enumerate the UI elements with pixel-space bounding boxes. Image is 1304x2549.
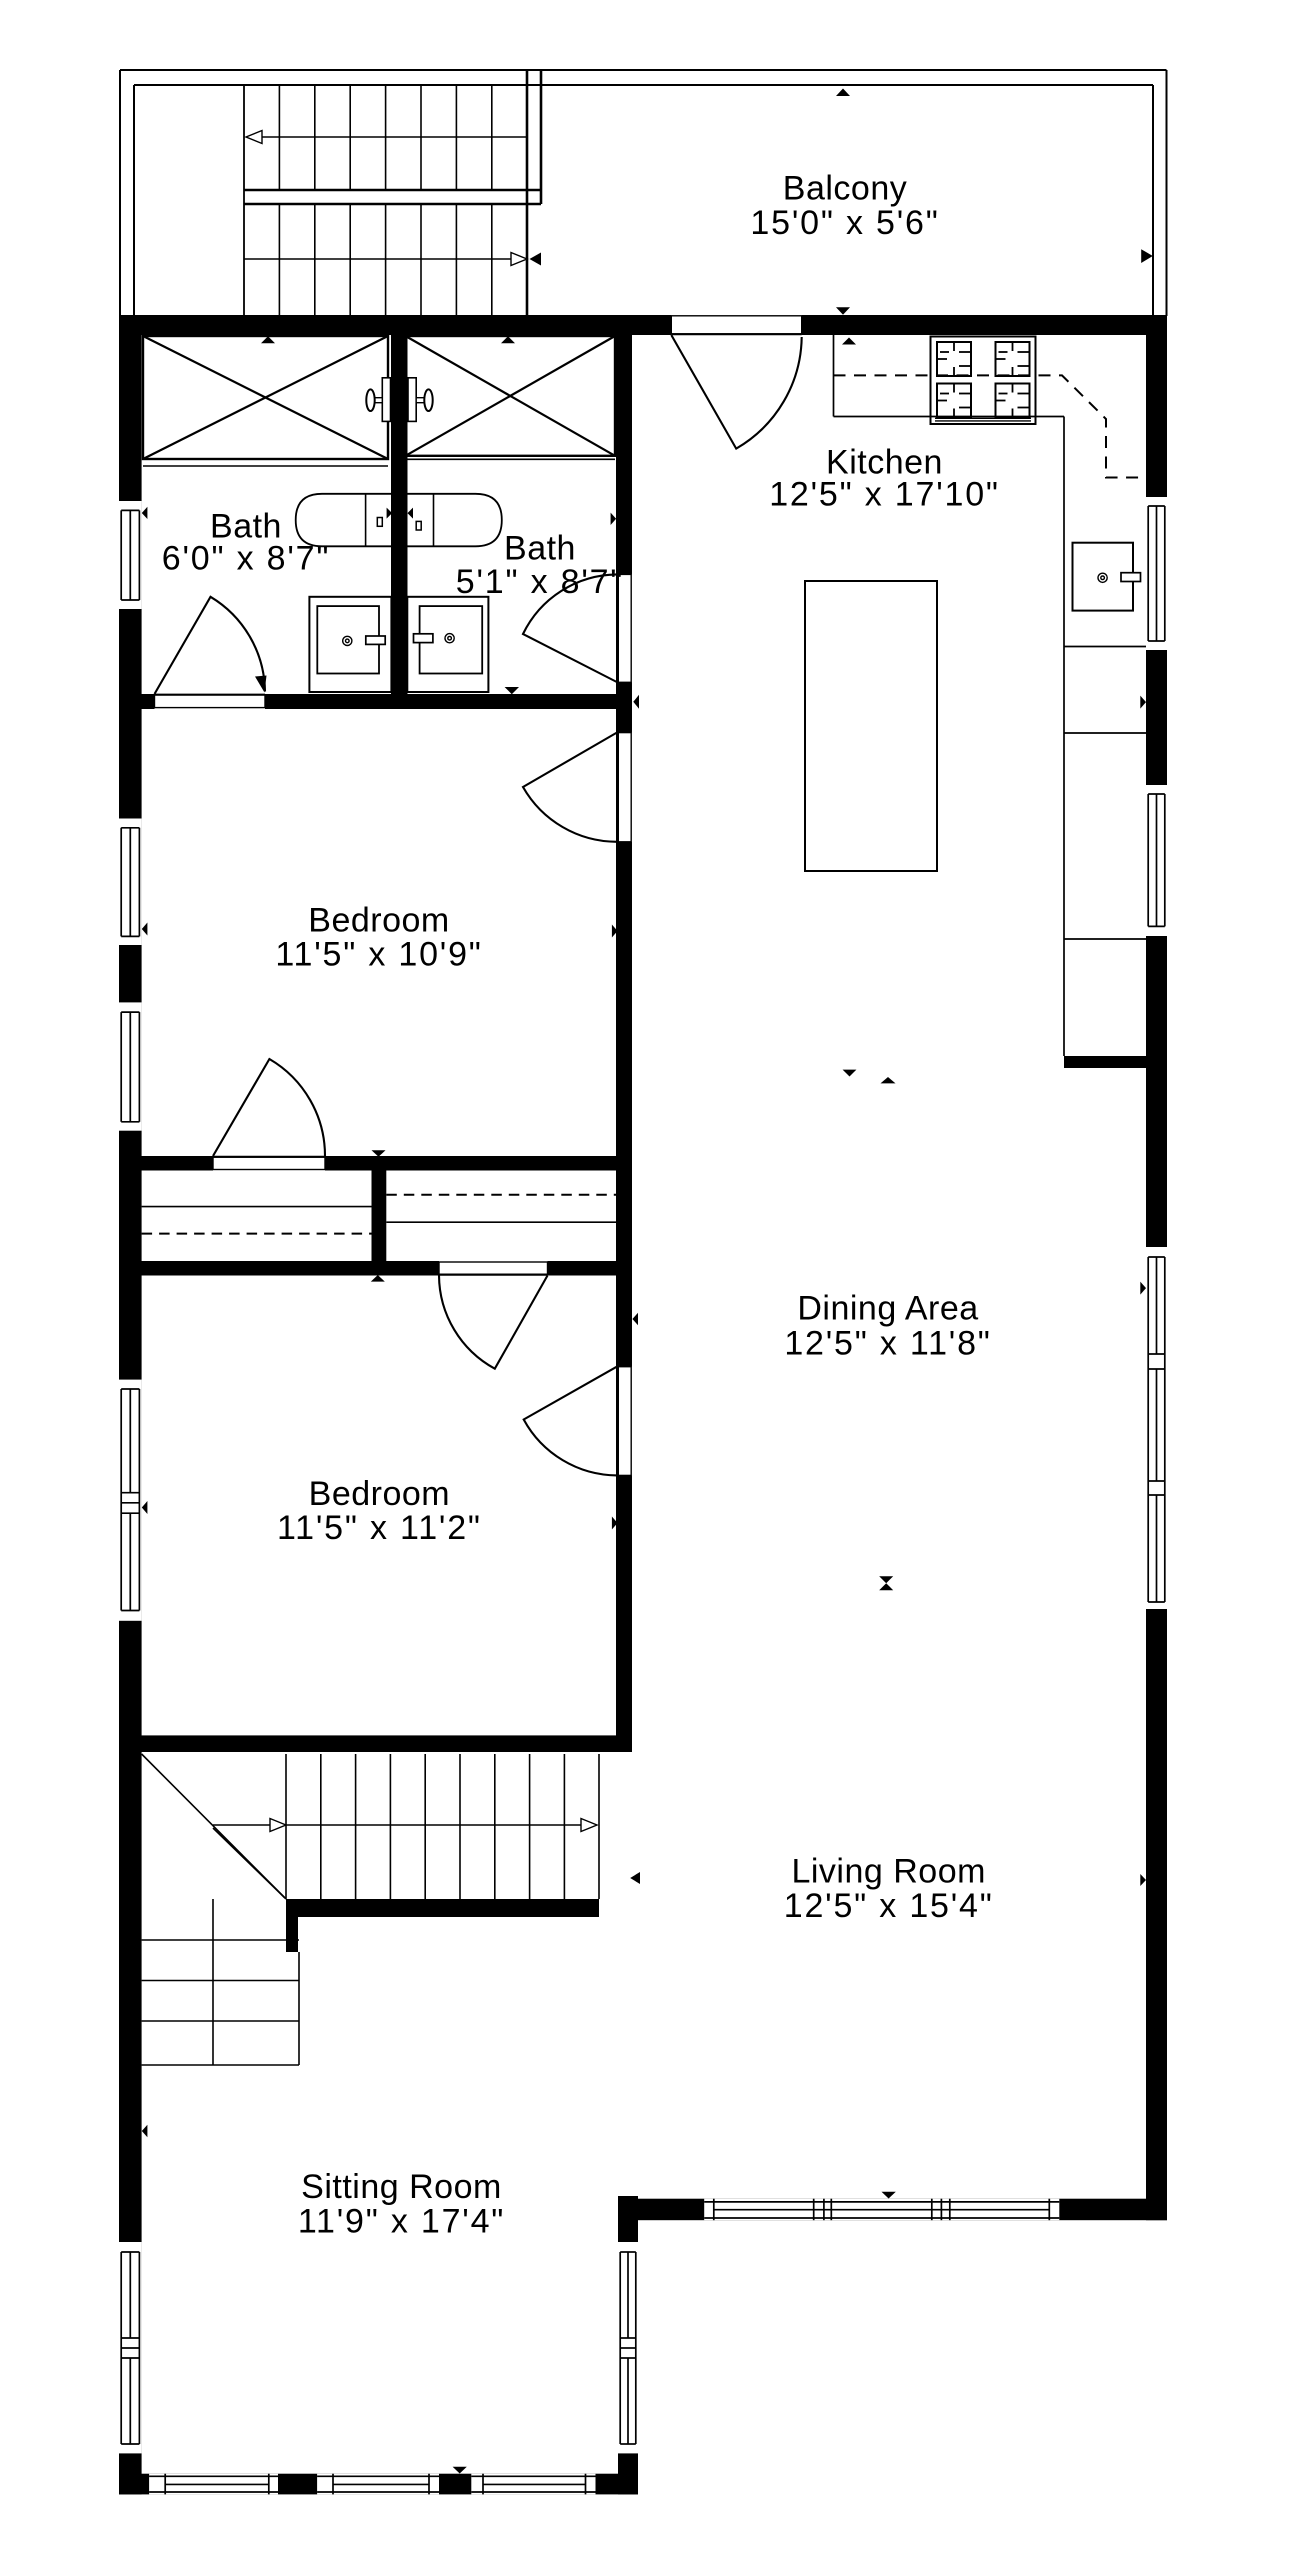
svg-text:Balcony: Balcony bbox=[783, 170, 907, 208]
svg-text:12'5" x 15'4": 12'5" x 15'4" bbox=[784, 1887, 994, 1925]
svg-text:15'0" x 5'6": 15'0" x 5'6" bbox=[750, 204, 939, 242]
svg-text:12'5" x 17'10": 12'5" x 17'10" bbox=[769, 476, 1000, 514]
svg-text:Bedroom: Bedroom bbox=[308, 902, 449, 940]
svg-text:Sitting Room: Sitting Room bbox=[301, 2168, 502, 2206]
svg-text:Living Room: Living Room bbox=[791, 1853, 985, 1891]
svg-text:Dining Area: Dining Area bbox=[797, 1290, 978, 1328]
svg-text:11'5" x 11'2": 11'5" x 11'2" bbox=[277, 1509, 482, 1547]
svg-text:11'9" x 17'4": 11'9" x 17'4" bbox=[298, 2203, 505, 2241]
svg-text:12'5" x 11'8": 12'5" x 11'8" bbox=[784, 1325, 991, 1363]
svg-text:Bedroom: Bedroom bbox=[309, 1475, 450, 1513]
svg-text:11'5" x 10'9": 11'5" x 10'9" bbox=[275, 936, 482, 974]
svg-text:Bath: Bath bbox=[504, 530, 576, 568]
svg-text:6'0" x 8'7": 6'0" x 8'7" bbox=[162, 540, 330, 578]
svg-text:5'1" x 8'7": 5'1" x 8'7" bbox=[456, 563, 624, 601]
